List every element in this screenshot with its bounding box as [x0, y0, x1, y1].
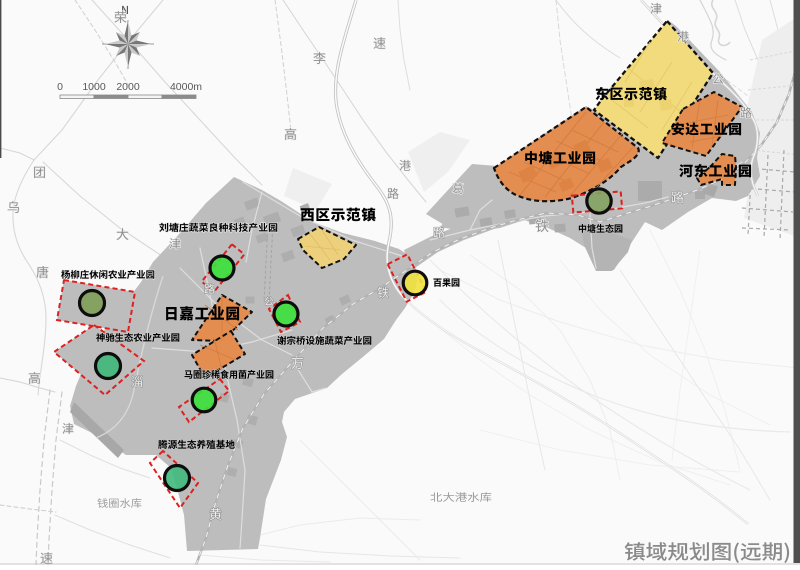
svg-text:1000: 1000 [82, 81, 106, 93]
svg-text:4000m: 4000m [170, 81, 202, 93]
svg-text:0: 0 [57, 81, 63, 93]
svg-text:2000: 2000 [116, 81, 140, 93]
